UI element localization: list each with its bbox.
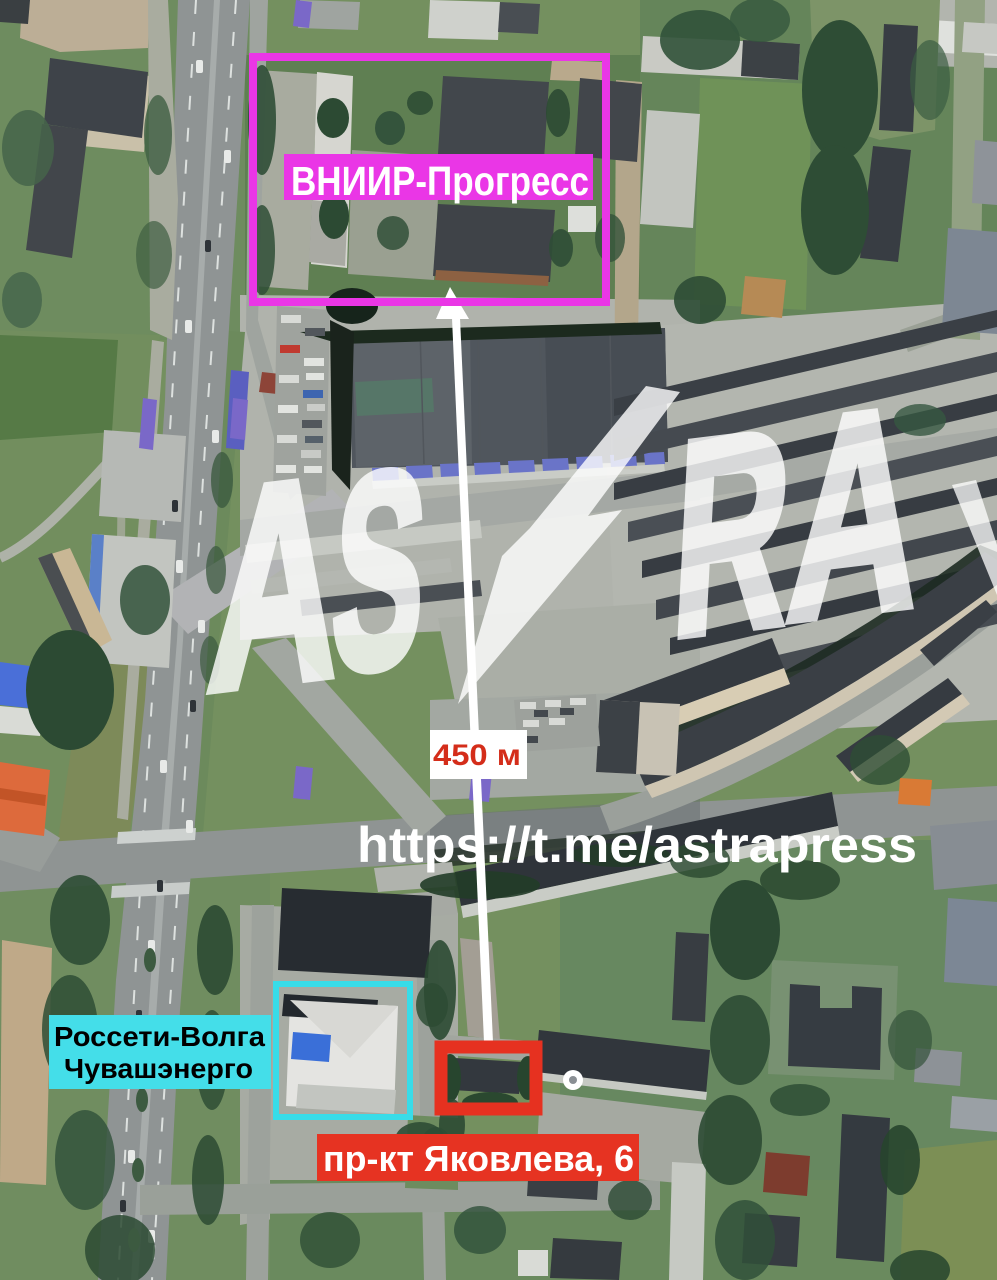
svg-text:Россети-Волга: Россети-Волга: [54, 1021, 265, 1052]
svg-text:R: R: [667, 372, 797, 696]
svg-text:450 м: 450 м: [433, 739, 521, 772]
svg-text:S: S: [326, 410, 433, 732]
svg-text:Чувашэнерго: Чувашэнерго: [64, 1053, 253, 1084]
svg-text:ВНИИР-Прогресс: ВНИИР-Прогресс: [291, 158, 589, 204]
svg-text:пр-кт Яковлева, 6: пр-кт Яковлева, 6: [323, 1138, 634, 1179]
svg-text:A: A: [782, 345, 928, 681]
svg-text:https://t.me/astrapress: https://t.me/astrapress: [357, 817, 917, 873]
